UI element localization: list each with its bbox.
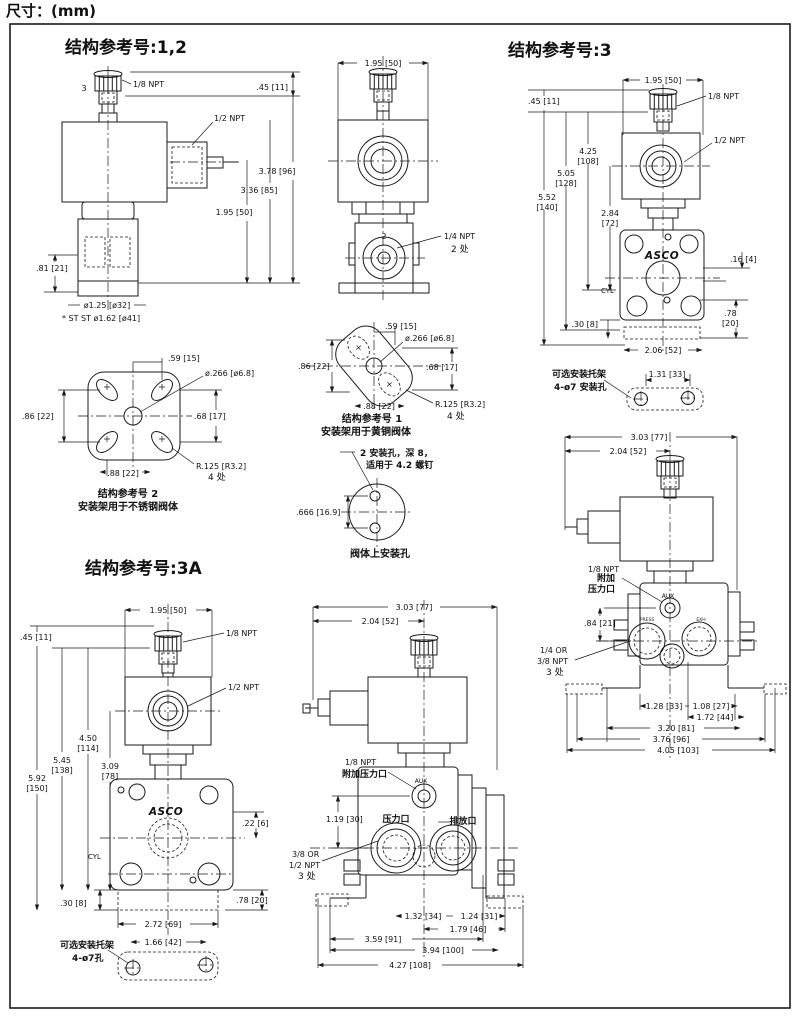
dim-86-22: .86 [22] bbox=[298, 362, 330, 371]
dimension-drawing-page: 尺寸：(mm) 结构参考号:1,2 结构参考号:3 结构参考号:3A 3 1/8… bbox=[0, 0, 800, 1029]
dim-204-52: 2.04 [52] bbox=[610, 447, 647, 456]
plate1-caption-1: 结构参考号 1 bbox=[342, 412, 402, 425]
npt14-label: 1/4 NPT bbox=[444, 232, 475, 241]
dim-666-169: .666 [16.9] bbox=[296, 508, 340, 517]
dim-108-27: 1.08 [27] bbox=[693, 702, 730, 711]
cyl-label: CYL bbox=[88, 853, 101, 861]
bracket-caption-1: 可选安装托架 bbox=[552, 368, 606, 380]
asco-logo: ASCO bbox=[644, 250, 679, 262]
dim-505mm: [128] bbox=[555, 179, 577, 188]
section-title-ref3a: 结构参考号:3A bbox=[85, 558, 203, 579]
dim-206-52: 2.06 [52] bbox=[645, 346, 682, 355]
press-emboss: PRESS bbox=[640, 617, 655, 623]
dim-59-15: .59 [15] bbox=[168, 354, 200, 363]
dim-425: 4.25 bbox=[579, 147, 597, 156]
bracket-caption-2: 4-ø7 安装孔 bbox=[554, 381, 607, 393]
dim-78-20: .78 [20] bbox=[236, 896, 268, 905]
dim-195-50: 1.95 [50] bbox=[216, 208, 253, 217]
optional-bracket-ref3: 可选安装托架 4-ø7 安装孔 1.31 [33] bbox=[552, 368, 703, 410]
npt18-aux-line3: 压力口 bbox=[588, 583, 615, 595]
dim-427-108: 4.27 [108] bbox=[389, 961, 431, 970]
dim-545: 5.45 bbox=[53, 756, 71, 765]
dim-30-8: .30 [8] bbox=[60, 899, 87, 908]
bracket-caption-2: 4-ø7孔 bbox=[72, 952, 103, 964]
dim-119-30: 1.19 [30] bbox=[326, 815, 363, 824]
dim-81-21: .81 [21] bbox=[36, 264, 68, 273]
bracket-caption-1: 可选安装托架 bbox=[60, 939, 114, 951]
dim-552: 5.52 bbox=[538, 193, 556, 202]
dim-78: .78 bbox=[724, 309, 737, 318]
dim-86-22: .86 [22] bbox=[22, 412, 54, 421]
dim-88-22: .88 [22] bbox=[363, 402, 395, 411]
radius-places: 4 处 bbox=[208, 471, 226, 483]
dim-309: 3.09 bbox=[101, 762, 119, 771]
drawing-canvas: 尺寸：(mm) 结构参考号:1,2 结构参考号:3 结构参考号:3A 3 1/8… bbox=[0, 0, 800, 1029]
body-mounting-holes-view: 2 安装孔，深 8， 适用于 4.2 螺钉 .666 [16.9] 阀体上安装孔 bbox=[296, 447, 433, 560]
dim-68-17: .68 [17] bbox=[426, 363, 458, 372]
port-label-2: 3/8 NPT bbox=[537, 657, 568, 666]
dim-425mm: [108] bbox=[577, 157, 599, 166]
dim-45-11: .45 [11] bbox=[20, 633, 52, 642]
npt18-label: 1/8 NPT bbox=[226, 629, 257, 638]
valve-12-side-view: 3 1/8 NPT 1/2 NPT .45 [11] 3.78 [96] 3.3… bbox=[36, 66, 300, 323]
dim-450: 4.50 bbox=[79, 734, 97, 743]
dim-22-6: .22 [6] bbox=[242, 819, 269, 828]
valve-3-front-view: 1.95 [50] 1/8 NPT 1/2 NPT ASCO CYL .45 [… bbox=[528, 76, 757, 355]
npt18-label: 1/8 NPT bbox=[708, 92, 739, 101]
valve-3a-side-view: 3.03 [77] 2.04 [52] AUX 1/8 NPT 附加压力口 1.… bbox=[289, 600, 523, 970]
dim-359-91: 3.59 [91] bbox=[365, 935, 402, 944]
port-label-2: 1/2 NPT bbox=[289, 861, 320, 870]
plate2-caption-2: 安装架用于不锈钢阀体 bbox=[78, 500, 179, 513]
aux-label: AUX bbox=[662, 593, 675, 600]
page-size-label: 尺寸：(mm) bbox=[6, 2, 96, 20]
plate2-caption-1: 结构参考号 2 bbox=[98, 487, 158, 500]
dim-128-33: 1.28 [33] bbox=[646, 702, 683, 711]
npt12-label: 1/2 NPT bbox=[714, 136, 745, 145]
asco-logo: ASCO bbox=[148, 806, 183, 818]
dim-width-coil: 1.95 [50] bbox=[645, 76, 682, 85]
dim-394-100: 3.94 [100] bbox=[422, 946, 464, 955]
dim-width-coil: 1.95 [50] bbox=[150, 606, 187, 615]
dim-59-15: .59 [15] bbox=[385, 322, 417, 331]
npt18-aux-line2: 附加 bbox=[597, 572, 615, 584]
dim-hole-dia: ø.266 [ø6.8] bbox=[405, 334, 454, 343]
dim-84-21: .84 [21] bbox=[584, 619, 616, 628]
bracket-hole-dim: 1.31 [33] bbox=[649, 370, 686, 379]
dim-336-85: 3.36 [85] bbox=[241, 186, 278, 195]
dim-303-77: 3.03 [77] bbox=[396, 603, 433, 612]
port-label-3: 3 处 bbox=[546, 666, 564, 678]
dim-dia-body: ø1.25 [ø32] bbox=[84, 301, 131, 310]
port-number-2: 2 bbox=[381, 232, 386, 241]
dim-303-77: 3.03 [77] bbox=[631, 433, 668, 442]
npt18-aux-line1: 1/8 NPT bbox=[588, 565, 619, 574]
npt14-places: 2 处 bbox=[451, 243, 469, 255]
dim-hole-dia: ø.266 [ø6.8] bbox=[205, 369, 254, 378]
dim-378-96: 3.78 [96] bbox=[259, 167, 296, 176]
dim-284mm: [72] bbox=[602, 219, 618, 228]
dim-124-31: 1.24 [31] bbox=[461, 912, 498, 921]
dim-30-8: .30 [8] bbox=[571, 320, 598, 329]
dim-width-coil: 1.95 [50] bbox=[365, 59, 402, 68]
dim-592: 5.92 bbox=[28, 774, 46, 783]
stst-note: * ST ST ø1.62 [ø41] bbox=[62, 314, 140, 323]
valve-3a-front-view: 1.95 [50] 1/8 NPT 1/2 NPT ASCO CYL .45 [… bbox=[20, 604, 269, 980]
dim-45-11: .45 [11] bbox=[528, 97, 560, 106]
dim-radius: R.125 [R3.2] bbox=[435, 400, 485, 409]
port-label-1: 3/8 OR bbox=[292, 850, 320, 859]
valve-3-side-view: 3.03 [77] 2.04 [52] AUX PRESS EXH 1/8 NP… bbox=[537, 432, 786, 758]
npt18-label: 1/8 NPT bbox=[133, 80, 164, 89]
cyl-label: CYL bbox=[601, 287, 614, 295]
mounting-plate-ref2: .59 [15] ø.266 [ø6.8] .86 [22] .68 [17] … bbox=[22, 354, 254, 513]
dim-272-69: 2.72 [69] bbox=[145, 920, 182, 929]
dim-284: 2.84 bbox=[601, 209, 619, 218]
dim-16-4: .16 [4] bbox=[730, 255, 757, 264]
dim-405-103: 4.05 [103] bbox=[657, 746, 699, 755]
valve-12-front-view: 1.95 [50] 2 1/4 NPT 2 处 bbox=[328, 56, 475, 302]
holes-note-2: 适用于 4.2 螺钉 bbox=[366, 459, 433, 471]
dim-320-81: 3.20 [81] bbox=[658, 724, 695, 733]
dim-545mm: [138] bbox=[51, 766, 73, 775]
dim-45-11: .45 [11] bbox=[256, 83, 288, 92]
plate1-caption-2: 安装架用于黄铜阀体 bbox=[321, 425, 412, 438]
dim-132-34: 1.32 [34] bbox=[405, 912, 442, 921]
dim-179-46: 1.79 [46] bbox=[450, 925, 487, 934]
mounting-plate-ref1: .59 [15] ø.266 [ø6.8] .86 [22] .68 [17] … bbox=[298, 319, 485, 438]
dim-204-52: 2.04 [52] bbox=[362, 617, 399, 626]
section-title-ref3: 结构参考号:3 bbox=[508, 40, 612, 61]
dim-88-22: .88 [22] bbox=[107, 469, 139, 478]
dim-172-44: 1.72 [44] bbox=[697, 713, 734, 722]
dim-309mm: [78] bbox=[102, 772, 118, 781]
dim-592mm: [150] bbox=[26, 784, 48, 793]
dim-68-17: .68 [17] bbox=[194, 412, 226, 421]
dim-505: 5.05 bbox=[557, 169, 575, 178]
holes-note-1: 2 安装孔，深 8， bbox=[360, 447, 433, 459]
npt18-aux-line2: 附加压力口 bbox=[342, 768, 387, 780]
section-title-ref12: 结构参考号:1,2 bbox=[65, 37, 187, 58]
dim-radius: R.125 [R3.2] bbox=[196, 462, 246, 471]
npt12-label: 1/2 NPT bbox=[228, 683, 259, 692]
port-label-3: 3 处 bbox=[298, 870, 316, 882]
port-number-label: 3 bbox=[81, 84, 86, 93]
bracket-dim: 1.66 [42] bbox=[145, 938, 182, 947]
radius-places: 4 处 bbox=[447, 410, 465, 422]
dim-552mm: [140] bbox=[536, 203, 558, 212]
holes-caption: 阀体上安装孔 bbox=[350, 547, 410, 560]
npt18-aux-line1: 1/8 NPT bbox=[345, 758, 376, 767]
dim-450mm: [114] bbox=[77, 744, 99, 753]
port-label-1: 1/4 OR bbox=[540, 646, 568, 655]
npt12-label: 1/2 NPT bbox=[214, 114, 245, 123]
dim-376-96: 3.76 [96] bbox=[653, 735, 690, 744]
dim-78mm: [20] bbox=[722, 319, 738, 328]
